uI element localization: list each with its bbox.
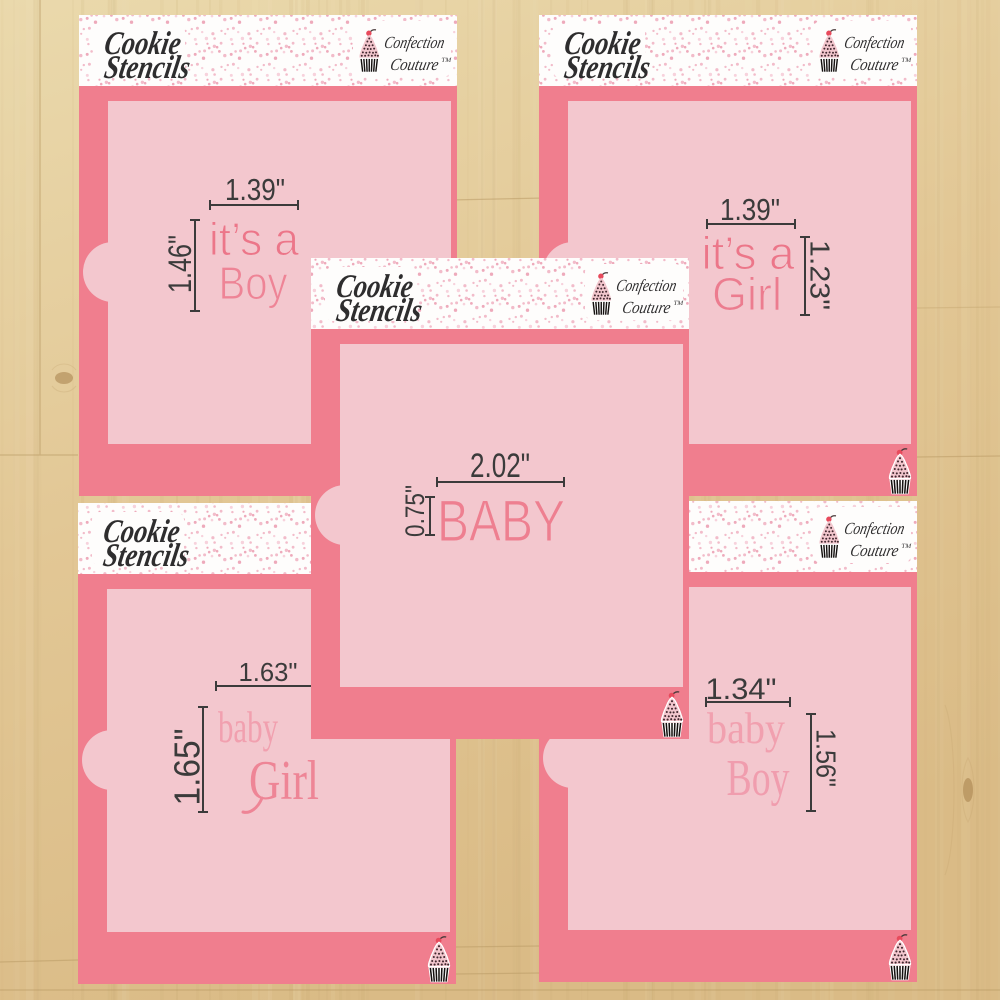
svg-text:Confection: Confection [615,276,679,295]
svg-text:Couture: Couture [389,55,441,74]
svg-text:0.75": 0.75" [400,485,430,537]
svg-text:Boy: Boy [727,750,790,807]
svg-text:1.63": 1.63" [239,657,298,687]
svg-text:1.39": 1.39" [720,192,780,227]
svg-text:TM: TM [441,57,452,64]
svg-text:baby: baby [707,704,785,753]
svg-text:Confection: Confection [383,33,447,52]
svg-text:Confection: Confection [843,33,907,52]
svg-text:Couture: Couture [849,541,901,560]
svg-text:TM: TM [673,300,684,307]
svg-text:1.39": 1.39" [225,172,285,207]
svg-text:Girl: Girl [712,268,782,320]
svg-text:Boy: Boy [219,257,288,309]
svg-text:Stencils: Stencils [101,537,192,574]
svg-text:TM: TM [901,543,912,550]
svg-text:Couture: Couture [849,55,901,74]
svg-text:1.65": 1.65" [167,729,208,806]
svg-text:Stencils: Stencils [334,292,425,329]
svg-text:1.23": 1.23" [805,240,836,310]
svg-text:Stencils: Stencils [562,49,653,86]
svg-text:baby: baby [218,703,278,752]
svg-text:Stencils: Stencils [102,49,193,86]
svg-text:TM: TM [901,57,912,64]
svg-text:Couture: Couture [621,298,673,317]
svg-text:1.56": 1.56" [811,729,842,787]
svg-text:Confection: Confection [843,519,907,538]
svg-text:1.46": 1.46" [162,235,198,293]
svg-text:2.02": 2.02" [470,447,530,485]
svg-text:BABY: BABY [437,489,565,554]
